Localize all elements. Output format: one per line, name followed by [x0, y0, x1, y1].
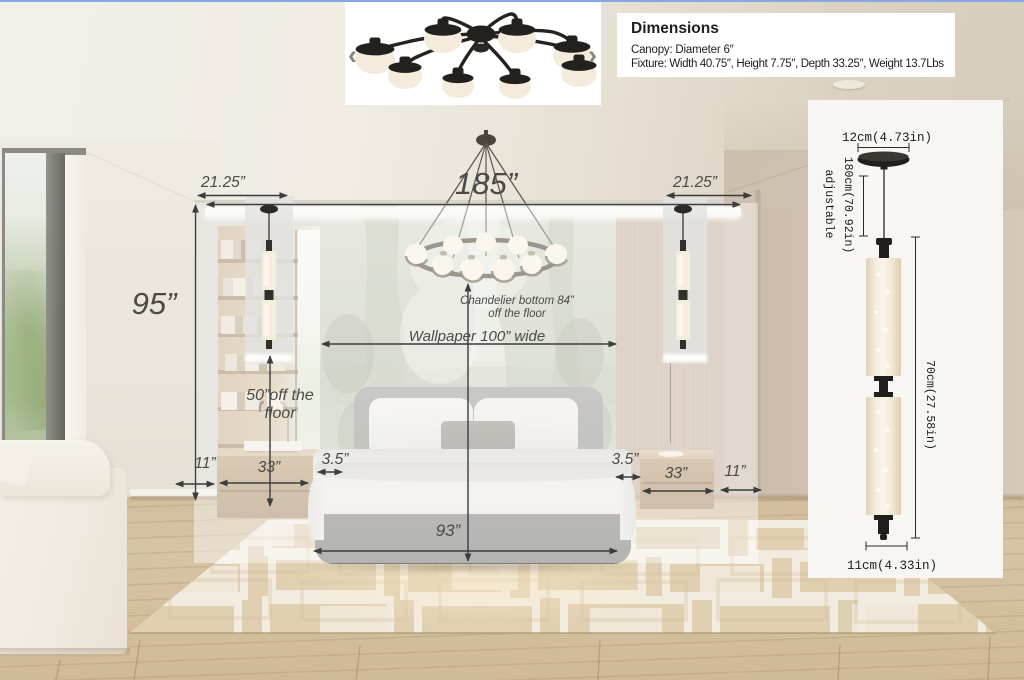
svg-text:33”: 33”: [258, 459, 281, 476]
svg-text:11”: 11”: [724, 463, 746, 480]
svg-text:3.5”: 3.5”: [322, 451, 350, 468]
svg-text:12cm(4.73in): 12cm(4.73in): [842, 131, 932, 145]
svg-text:93”: 93”: [436, 521, 462, 540]
svg-text:21.25”: 21.25”: [672, 174, 718, 191]
svg-text:33”: 33”: [665, 465, 688, 482]
svg-text:21.25”: 21.25”: [200, 174, 246, 191]
svg-text:11cm(4.33in): 11cm(4.33in): [847, 559, 937, 573]
svg-text:Wallpaper 100” wide: Wallpaper 100” wide: [409, 328, 545, 345]
svg-text:50”off the: 50”off the: [246, 387, 314, 404]
svg-text:off the floor: off the floor: [488, 308, 547, 320]
svg-text:adjustable: adjustable: [822, 169, 835, 238]
svg-text:95”: 95”: [132, 286, 178, 321]
svg-text:70cm(27.58in): 70cm(27.58in): [923, 360, 936, 450]
svg-text:180cm(70.92in): 180cm(70.92in): [841, 157, 854, 254]
svg-text:185”: 185”: [455, 166, 519, 201]
svg-text:Chandelier bottom 84”: Chandelier bottom 84”: [460, 295, 575, 307]
svg-text:floor: floor: [264, 405, 296, 422]
svg-text:3.5”: 3.5”: [612, 451, 640, 468]
svg-text:11”: 11”: [194, 455, 216, 472]
